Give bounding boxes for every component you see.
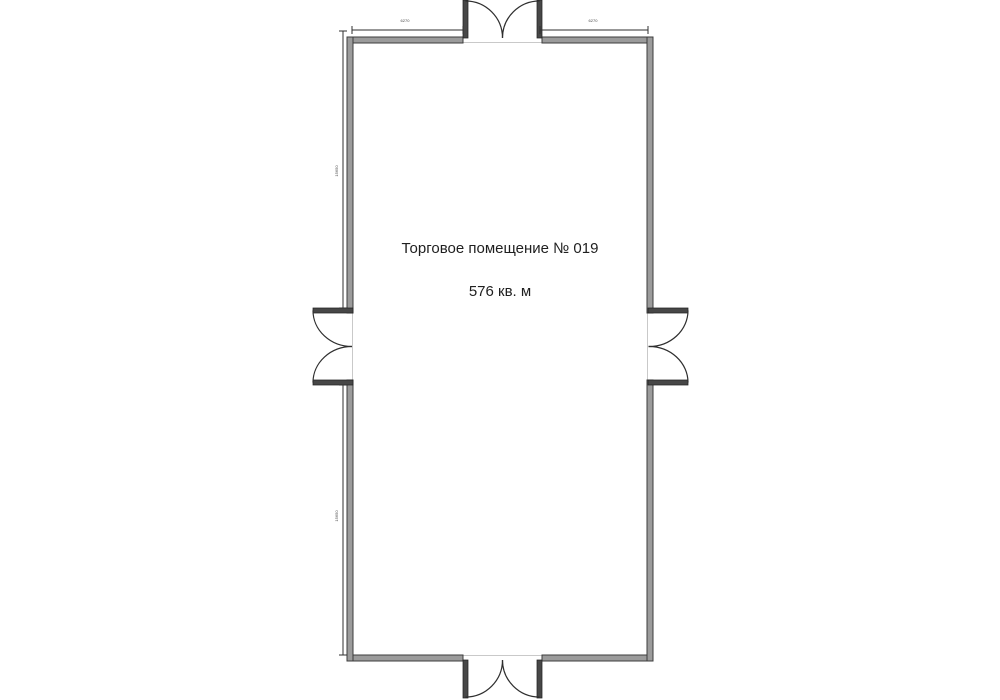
wall-top-left-segment — [347, 37, 463, 43]
dimension-top-right — [540, 26, 648, 34]
door-swing-arc — [313, 311, 352, 347]
floor-plan: Торговое помещение № 019 576 кв. м 6270 … — [0, 0, 1000, 700]
door-swing-arc — [503, 660, 540, 697]
door-swing-arc — [466, 660, 503, 697]
wall-left-lower-segment — [347, 380, 353, 661]
door-thresholds — [353, 43, 648, 656]
walls — [347, 37, 653, 661]
door-swing-arc — [313, 347, 352, 383]
dimension-lines — [339, 26, 648, 655]
wall-top-right-segment — [542, 37, 653, 43]
dimension-top-left — [352, 26, 463, 34]
door-leaf — [648, 380, 688, 385]
dimension-left-lower — [339, 385, 347, 655]
room-title: Торговое помещение № 019 — [347, 240, 653, 257]
wall-bottom-right-segment — [542, 655, 653, 661]
door-bottom — [463, 660, 542, 698]
door-top — [463, 0, 542, 38]
door-leaf — [537, 660, 542, 698]
door-right — [648, 308, 688, 385]
dimension-label-left-lower: 15650 — [335, 509, 340, 524]
door-swing-arc — [649, 346, 689, 382]
door-leaf — [463, 0, 468, 38]
wall-right-upper-segment — [647, 37, 653, 313]
floor-plan-drawing — [0, 0, 1000, 700]
door-leaf — [463, 660, 468, 698]
door-leaf — [648, 308, 688, 313]
door-swing-arc — [649, 311, 689, 347]
wall-bottom-left-segment — [347, 655, 463, 661]
door-swing-arc — [503, 1, 540, 38]
door-leaf — [313, 308, 353, 313]
dimension-label-top-left: 6270 — [398, 19, 413, 24]
wall-left-upper-segment — [347, 37, 353, 313]
wall-right-lower-segment — [647, 380, 653, 661]
door-leaf — [313, 380, 353, 385]
room-area: 576 кв. м — [347, 283, 653, 300]
door-left — [313, 308, 353, 385]
dimension-label-left-upper: 15650 — [335, 164, 340, 179]
dimension-label-top-right: 6270 — [586, 19, 601, 24]
door-swing-arc — [466, 1, 503, 38]
dimension-left-upper — [339, 31, 347, 308]
